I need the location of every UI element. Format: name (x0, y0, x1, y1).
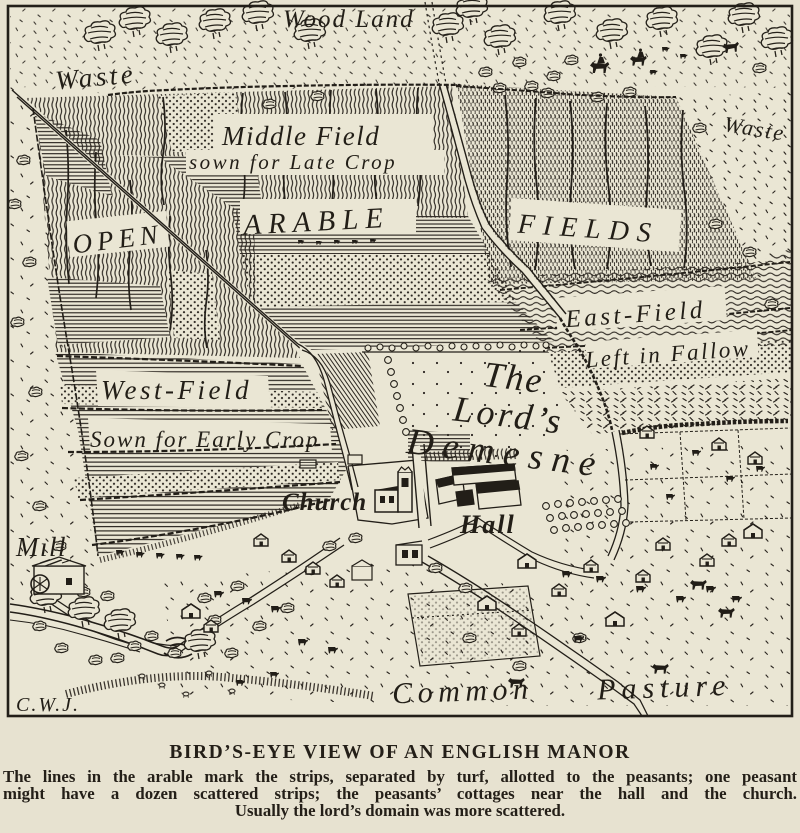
svg-text:West-Field: West-Field (101, 375, 252, 405)
svg-text:Common: Common (392, 672, 534, 710)
svg-text:Mıll: Mıll (15, 532, 67, 562)
svg-text:Church: Church (282, 489, 367, 516)
svg-text:Sown for Early Crop: Sown for Early Crop (90, 427, 319, 452)
svg-text:sown for Late Crop: sown for Late Crop (189, 150, 397, 174)
svg-text:Hall: Hall (459, 510, 516, 539)
svg-text:C.W.J.: C.W.J. (16, 694, 80, 716)
svg-text:Middle Field: Middle Field (221, 121, 380, 151)
svg-text:Wood Land: Wood Land (283, 6, 415, 33)
svg-text:Pasture: Pasture (596, 669, 732, 707)
